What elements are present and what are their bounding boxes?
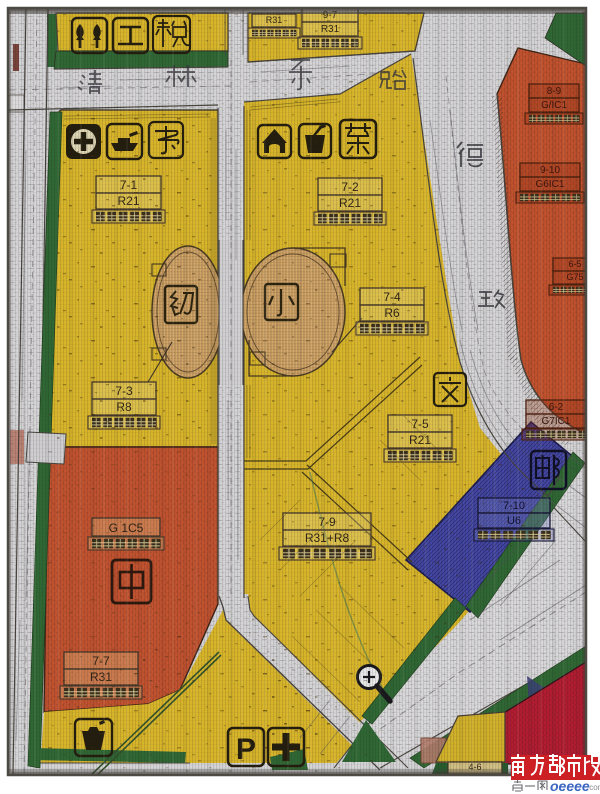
svg-text:.com: .com — [587, 783, 600, 792]
svg-text:oeeee: oeeee — [550, 778, 590, 794]
